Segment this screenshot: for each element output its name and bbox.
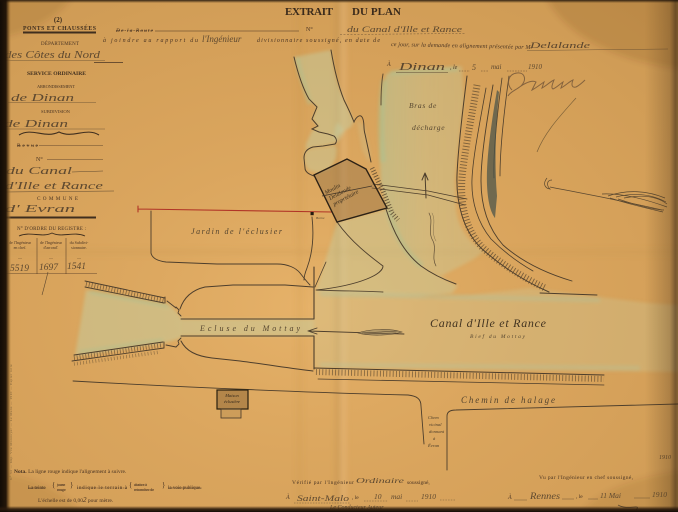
svg-text:l'Ingénieur: l'Ingénieur — [202, 34, 242, 44]
svg-text:Borne: Borne — [316, 216, 325, 220]
svg-text:Bras de: Bras de — [409, 101, 437, 110]
svg-text:À: À — [386, 60, 391, 68]
svg-text:d'arrond'.: d'arrond'. — [44, 245, 59, 250]
svg-text:mai: mai — [491, 63, 502, 71]
svg-text:Vu par l'Ingénieur en chef sou: Vu par l'Ingénieur en chef soussigné, — [539, 474, 634, 481]
svg-text:5: 5 — [472, 63, 476, 72]
svg-text:N°: N° — [36, 156, 43, 163]
svg-text:du Canal: du Canal — [6, 166, 72, 177]
svg-text:1910: 1910 — [421, 492, 436, 501]
svg-text:, le: , le — [450, 65, 458, 71]
svg-text:DÉPARTEMENT: DÉPARTEMENT — [41, 41, 79, 47]
svg-text:Canal d'Ille et Rance: Canal d'Ille et Rance — [430, 316, 547, 330]
svg-text:la voie publique.: la voie publique. — [168, 486, 201, 491]
svg-text:Nota. La ligne rouge indique l: Nota. La ligne rouge indique l'alignemen… — [14, 469, 127, 475]
svg-text:Delalande: Delalande — [528, 41, 591, 50]
svg-text:éclusière: éclusière — [224, 399, 240, 404]
svg-text:Chemin de halage: Chemin de halage — [461, 395, 555, 405]
svg-text:{: { — [129, 481, 132, 489]
svg-text:des Côtes du Nord: des Côtes du Nord — [5, 50, 101, 61]
svg-text:à joindre au rapport du: à joindre au rapport du — [103, 38, 198, 44]
svg-text:DU PLAN: DU PLAN — [352, 6, 401, 18]
svg-text:N°: N° — [306, 26, 313, 33]
svg-text:Saint-Malo: Saint-Malo — [297, 493, 349, 503]
svg-text:donnant: donnant — [429, 429, 445, 434]
svg-text:sionnaire.: sionnaire. — [71, 245, 87, 250]
svg-text:de Dinan: de Dinan — [4, 119, 68, 130]
svg-text:Dinan: Dinan — [397, 61, 446, 73]
svg-text:vicinal: vicinal — [429, 422, 442, 427]
svg-text:d' Evran: d' Evran — [5, 204, 75, 215]
svg-text:rouge: rouge — [57, 488, 66, 492]
svg-text:De la Route: De la Route — [115, 28, 154, 34]
svg-text:À: À — [507, 493, 512, 501]
svg-text:soussigné,: soussigné, — [407, 480, 430, 486]
svg-text:décharge: décharge — [412, 123, 445, 132]
svg-text:divisionnaire soussigné, en da: divisionnaire soussigné, en date de — [257, 38, 380, 44]
svg-text:{: { — [52, 481, 55, 489]
svg-text:Maison: Maison — [224, 393, 239, 398]
svg-text:Ordinaire: Ordinaire — [356, 476, 405, 485]
svg-text:La teinte: La teinte — [28, 486, 46, 491]
svg-text:, le: , le — [352, 495, 359, 501]
svg-text:jaune: jaune — [56, 483, 66, 487]
svg-text:EXTRAIT: EXTRAIT — [285, 6, 334, 18]
svg-text:Chem: Chem — [428, 415, 439, 420]
svg-text:mai: mai — [391, 492, 402, 501]
svg-text:Vérifié par l'Ingénieur: Vérifié par l'Ingénieur — [292, 479, 354, 486]
svg-text:SUBDIVISION: SUBDIVISION — [41, 109, 71, 114]
svg-text:du Canal d'Ille et Rance: du Canal d'Ille et Rance — [347, 24, 462, 34]
svg-text:N° D'ORDRE DU REGISTRE :: N° D'ORDRE DU REGISTRE : — [17, 227, 86, 232]
svg-text:}: } — [70, 481, 73, 489]
svg-text:1697: 1697 — [39, 263, 59, 273]
svg-text:Rennes: Rennes — [529, 491, 561, 501]
svg-text:abattre à: abattre à — [134, 483, 147, 487]
svg-text:11 Mai: 11 Mai — [600, 491, 621, 500]
svg-text:À: À — [285, 493, 290, 501]
svg-text:1541: 1541 — [67, 262, 86, 272]
svg-text:(2): (2) — [54, 16, 63, 24]
svg-text:SERVICE ORDINAIRE: SERVICE ORDINAIRE — [27, 71, 86, 77]
svg-text:Bief du Mottay: Bief du Mottay — [470, 333, 526, 340]
svg-text:5519: 5519 — [10, 264, 29, 274]
svg-text:, le: , le — [576, 494, 583, 500]
svg-text:retrancher de: retrancher de — [134, 488, 154, 492]
svg-text:Évran: Évran — [427, 443, 440, 448]
svg-text:Revue: Revue — [17, 143, 39, 149]
svg-text:10: 10 — [374, 492, 382, 501]
svg-text:en chef.: en chef. — [14, 245, 27, 250]
svg-text:d'Ille et Rance: d'Ille et Rance — [5, 181, 104, 192]
svg-text:PONTS ET CHAUSSÉES: PONTS ET CHAUSSÉES — [23, 24, 96, 32]
svg-text:L'échelle est de 0,002 pour mè: L'échelle est de 0,002 pour mètre. — [38, 496, 114, 504]
svg-text:COMMUNE: COMMUNE — [37, 196, 79, 202]
svg-text:indique le terrain à: indique le terrain à — [77, 486, 128, 491]
svg-text:1910: 1910 — [528, 63, 543, 71]
svg-text:}: } — [162, 481, 165, 489]
svg-text:ARRONDISSEMENT: ARRONDISSEMENT — [37, 84, 75, 89]
